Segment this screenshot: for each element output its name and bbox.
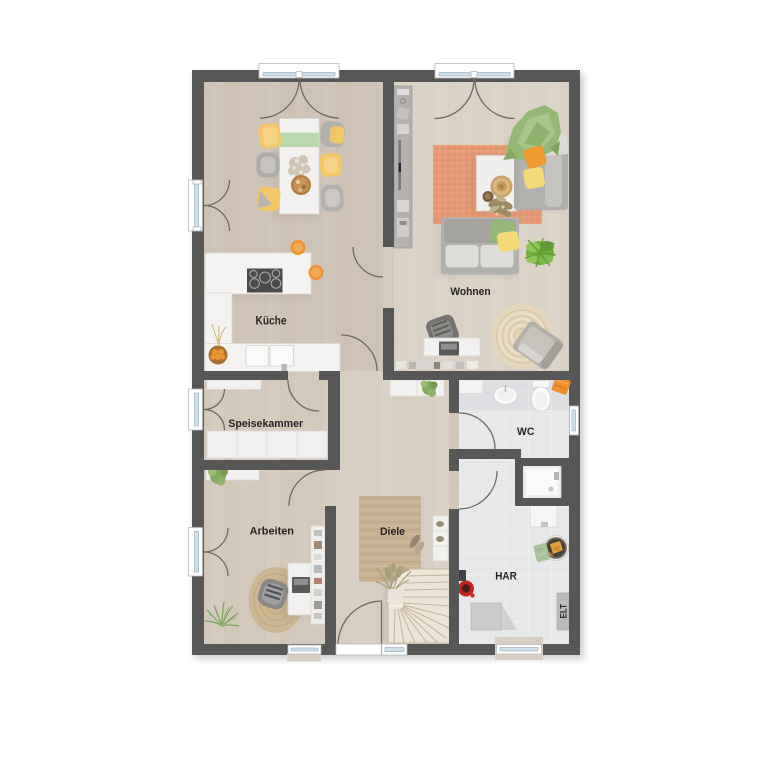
svg-text:WC: WC <box>517 426 534 438</box>
svg-text:Speisekammer: Speisekammer <box>228 418 303 430</box>
svg-text:ELT: ELT <box>558 604 569 619</box>
svg-text:Küche: Küche <box>256 315 287 327</box>
svg-text:Arbeiten: Arbeiten <box>250 526 295 538</box>
svg-text:HAR: HAR <box>495 571 517 583</box>
svg-text:Diele: Diele <box>380 526 405 538</box>
svg-text:Wohnen: Wohnen <box>450 286 490 298</box>
